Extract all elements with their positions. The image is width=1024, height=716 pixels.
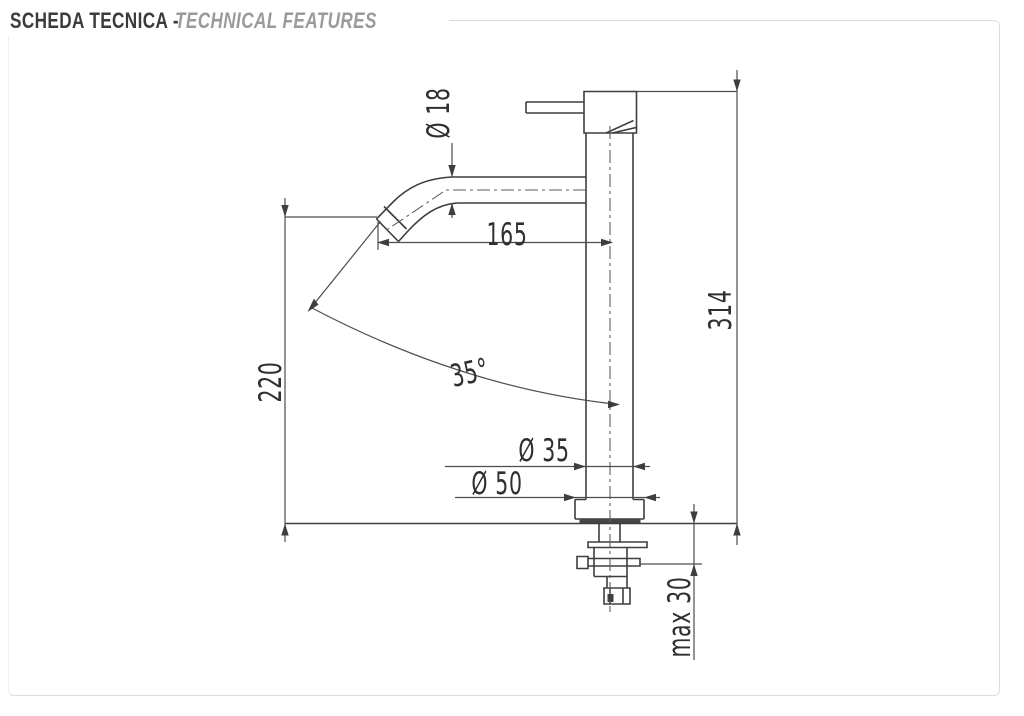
label-outlet-height: 220 (254, 361, 289, 402)
arrow-outlet-height-top (281, 205, 288, 217)
page-header: SCHEDA TECNICA - TECHNICAL FEATURES (0, 6, 449, 36)
faucet-outline (285, 92, 737, 605)
dimension-labels: Ø 18 165 314 220 35° Ø 35 Ø 50 max 30 (254, 87, 739, 657)
label-spout-reach: 165 (486, 218, 527, 253)
page-title: SCHEDA TECNICA - (10, 8, 179, 34)
arrow-reach-right (601, 239, 613, 246)
arrow-height-top (733, 80, 740, 92)
faucet-handle (526, 102, 584, 113)
arrow-body-dia-right (633, 463, 645, 470)
mounting-hardware (577, 524, 647, 604)
arrow-max-thickness-bottom (690, 564, 697, 576)
label-spout-diameter: Ø 18 (422, 87, 457, 138)
arrow-reach-left (377, 239, 389, 246)
arrow-height-bottom (733, 524, 740, 536)
arrow-spout-dia-top (448, 165, 455, 177)
technical-sheet-page: SCHEDA TECNICA - TECHNICAL FEATURES (0, 0, 1024, 716)
arrow-outlet-height-bottom (281, 524, 288, 536)
centerlines (385, 126, 610, 612)
arrow-max-thickness-top (690, 512, 697, 524)
faucet-technical-drawing: Ø 18 165 314 220 35° Ø 35 Ø 50 max 30 (0, 0, 1024, 716)
label-max-thickness: max 30 (663, 576, 698, 657)
arrow-body-dia-left (574, 463, 586, 470)
label-base-diameter: Ø 50 (471, 467, 522, 502)
label-stream-angle: 35° (448, 352, 493, 395)
arrow-base-dia-right (644, 494, 656, 501)
arrow-stream-arc-end (608, 401, 620, 408)
label-body-diameter: Ø 35 (518, 434, 569, 469)
faucet-spout (377, 177, 587, 242)
dimension-lines (285, 70, 737, 660)
label-total-height: 314 (704, 289, 739, 330)
dim-line-spout-reach (285, 217, 612, 250)
stream-direction-leader (312, 222, 381, 307)
page-subtitle: TECHNICAL FEATURES (175, 8, 377, 34)
